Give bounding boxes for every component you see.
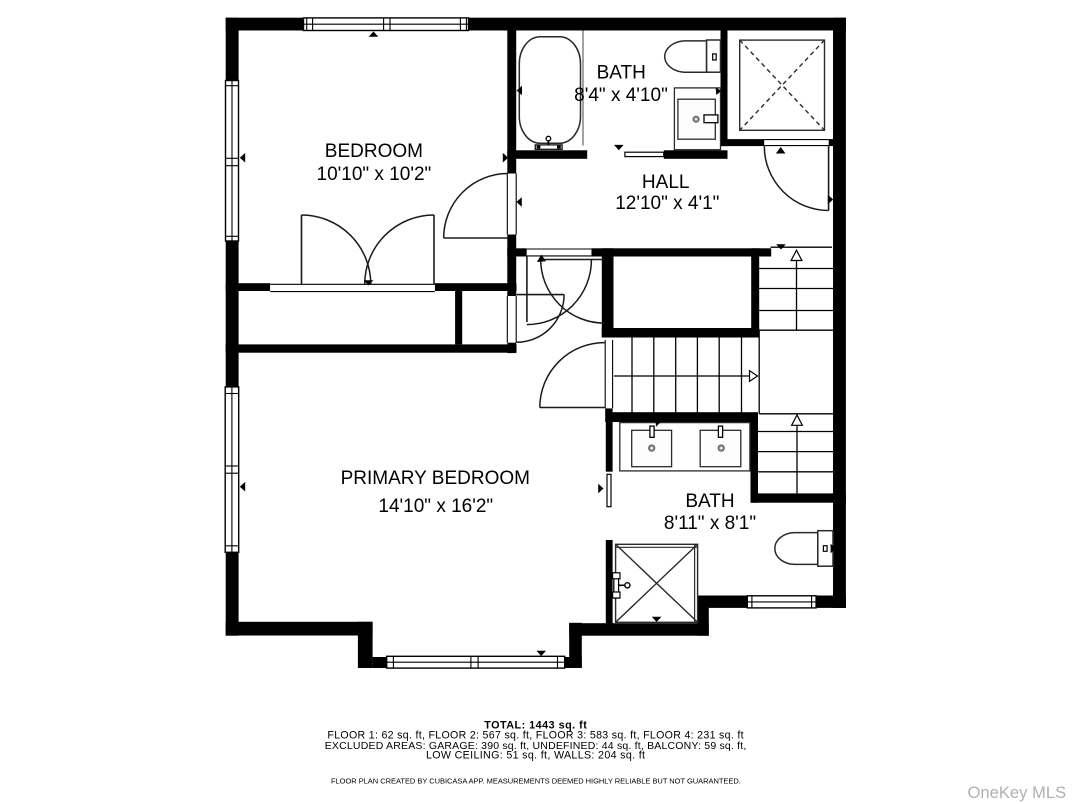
svg-text:BATH: BATH [597, 63, 646, 84]
svg-text:10'10" x 10'2": 10'10" x 10'2" [317, 164, 432, 185]
svg-text:12'10" x 4'1": 12'10" x 4'1" [615, 193, 719, 214]
svg-text:BEDROOM: BEDROOM [325, 141, 423, 162]
svg-text:8'4" x 4'10": 8'4" x 4'10" [574, 85, 668, 106]
svg-text:FLOOR PLAN CREATED BY CUBICASA: FLOOR PLAN CREATED BY CUBICASA APP. MEAS… [331, 776, 741, 785]
svg-text:8'11" x 8'1": 8'11" x 8'1" [664, 513, 756, 534]
svg-text:BATH: BATH [685, 491, 734, 512]
svg-text:HALL: HALL [642, 172, 690, 193]
svg-text:14'10" x 16'2": 14'10" x 16'2" [378, 496, 493, 517]
svg-text:LOW CEILING: 51 sq. ft, WALLS:: LOW CEILING: 51 sq. ft, WALLS: 204 sq. f… [426, 750, 645, 762]
svg-text:PRIMARY BEDROOM: PRIMARY BEDROOM [341, 468, 530, 489]
svg-text:OneKey MLS: OneKey MLS [967, 783, 1066, 802]
